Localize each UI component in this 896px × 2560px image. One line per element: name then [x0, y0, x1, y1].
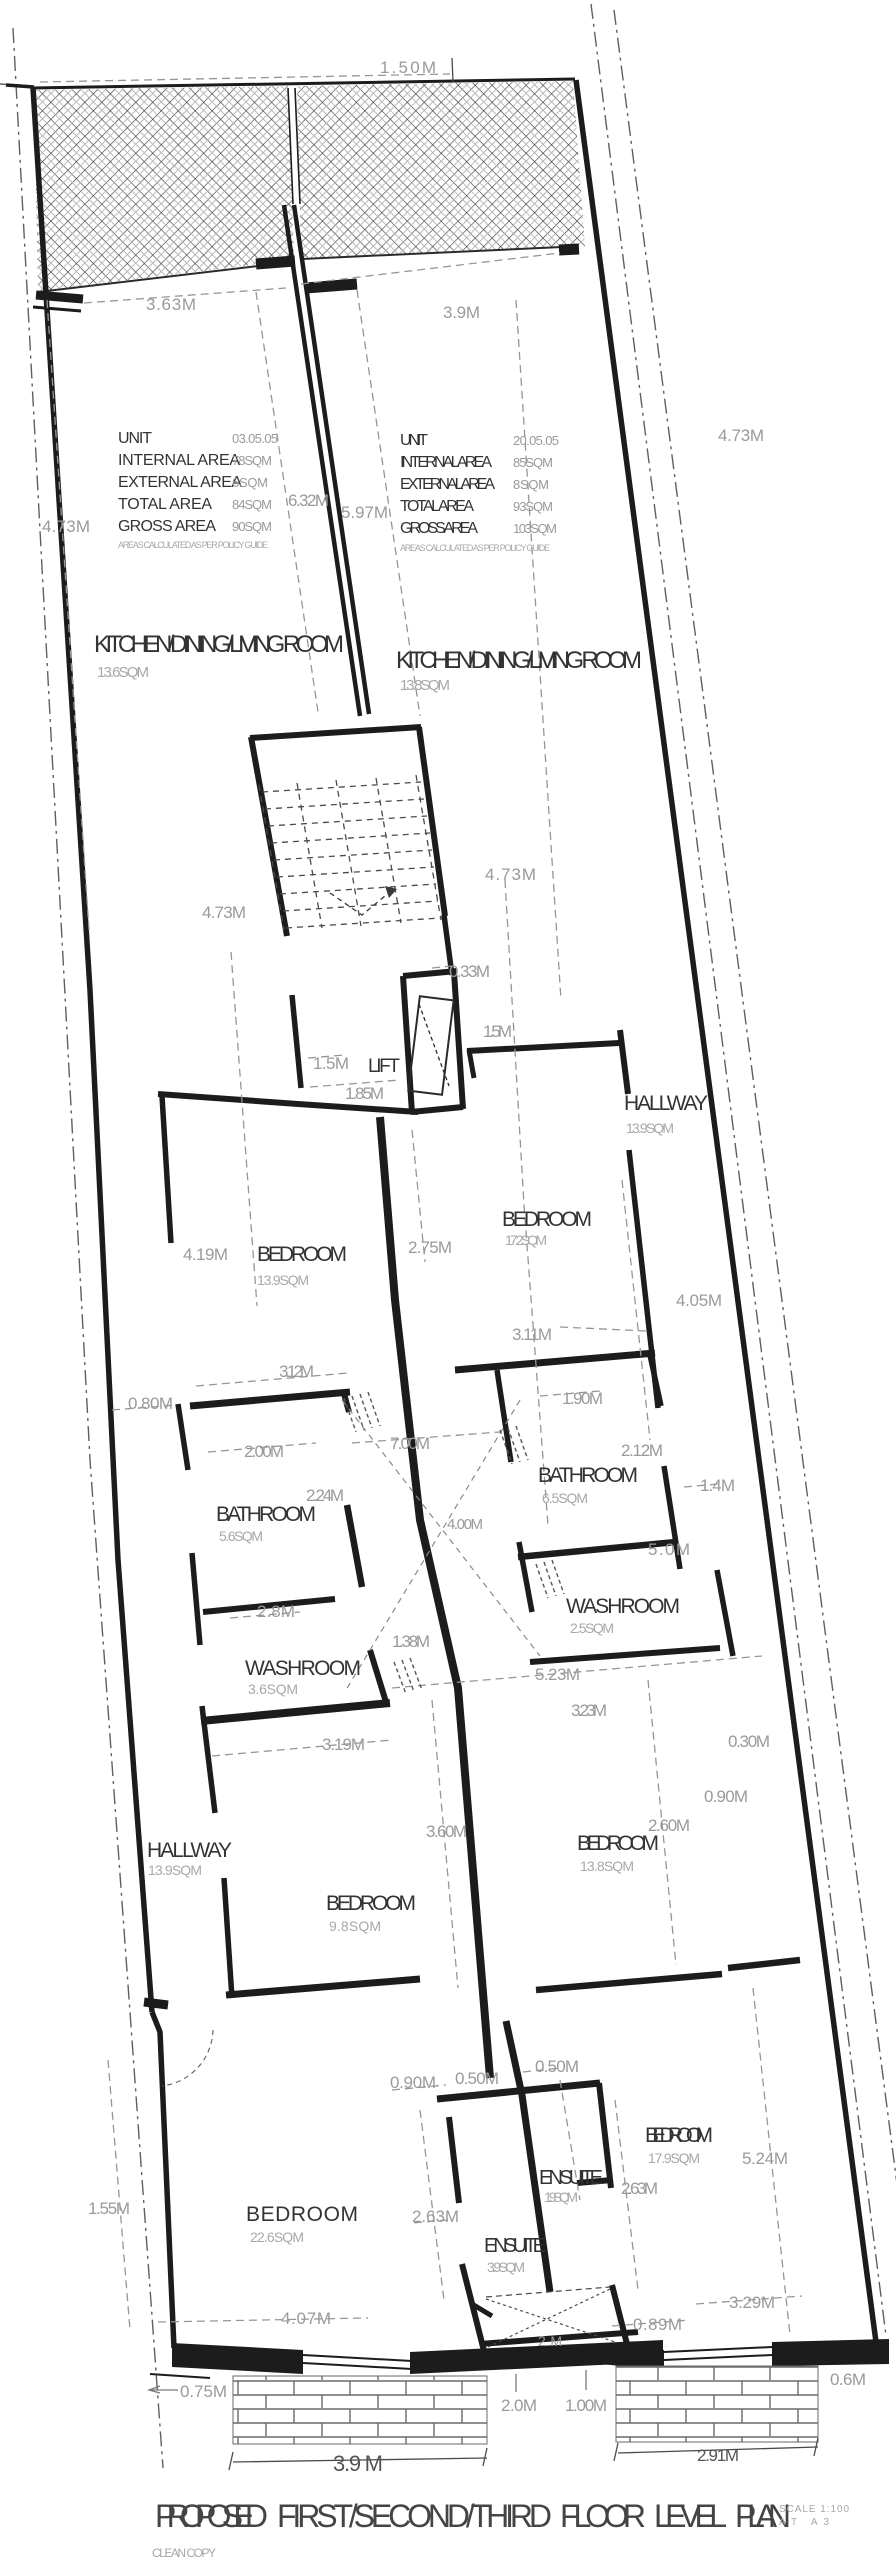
svg-text:5.23M: 5.23M: [535, 1665, 580, 1684]
svg-text:UNIT: UNIT: [400, 432, 428, 449]
svg-text:KITCHEN/DINING/LIVING ROOM: KITCHEN/DINING/LIVING ROOM: [94, 631, 344, 658]
svg-text:0.90M: 0.90M: [390, 2073, 436, 2092]
svg-text:2.5SQM: 2.5SQM: [570, 1620, 614, 1636]
svg-text:0.30M: 0.30M: [728, 1732, 770, 1751]
svg-text:SCALE 1:100: SCALE 1:100: [779, 2504, 849, 2515]
svg-text:BEDROOM: BEDROOM: [502, 1208, 592, 1231]
svg-text:0.80M: 0.80M: [128, 1394, 173, 1413]
svg-text:2.8M: 2.8M: [257, 1602, 295, 1621]
svg-text:AREAS CALCULATED AS PER POLICY: AREAS CALCULATED AS PER POLICY GUIDE: [400, 543, 550, 553]
svg-text:3.9SQM: 3.9SQM: [487, 2259, 525, 2275]
svg-text:3.11M: 3.11M: [512, 1325, 552, 1344]
svg-text:90SQM: 90SQM: [232, 519, 272, 534]
svg-text:5.6SQM: 5.6SQM: [219, 1528, 263, 1544]
svg-text:6.5SQM: 6.5SQM: [542, 1490, 588, 1506]
svg-text:BEDROOM: BEDROOM: [577, 1832, 659, 1855]
svg-text:BEDROOM: BEDROOM: [645, 2124, 713, 2147]
svg-text:LEVEL: LEVEL: [654, 2498, 727, 2534]
svg-text:2.91M: 2.91M: [697, 2446, 739, 2465]
svg-text:KITCHEN/DINING/LIVING ROOM: KITCHEN/DINING/LIVING ROOM: [396, 647, 642, 674]
svg-text:4.19M: 4.19M: [183, 1245, 228, 1264]
svg-text:6.32M: 6.32M: [288, 491, 329, 510]
svg-text:INTERNAL AREA: INTERNAL AREA: [118, 452, 240, 469]
svg-text:1.90M: 1.90M: [562, 1389, 603, 1408]
svg-text:3.60M: 3.60M: [426, 1822, 467, 1841]
svg-text:1.50M: 1.50M: [380, 58, 436, 77]
svg-text:9.8SQM: 9.8SQM: [329, 1918, 381, 1934]
svg-text:2.63M: 2.63M: [412, 2207, 459, 2226]
svg-text:22.6SQM: 22.6SQM: [250, 2229, 304, 2245]
svg-text:1.55M: 1.55M: [88, 2199, 130, 2218]
svg-text:78SQM: 78SQM: [232, 453, 272, 468]
svg-text:ENSUITE: ENSUITE: [484, 2235, 546, 2257]
svg-text:17.9SQM: 17.9SQM: [648, 2150, 700, 2166]
svg-text:BATHROOM: BATHROOM: [538, 1464, 638, 1487]
svg-text:3.12M: 3.12M: [279, 1362, 314, 1381]
svg-text:WASHROOM: WASHROOM: [245, 1657, 361, 1680]
svg-text:1.38M: 1.38M: [392, 1632, 430, 1651]
svg-text:5.97M: 5.97M: [341, 503, 388, 522]
svg-text:13.9SQM: 13.9SQM: [148, 1862, 202, 1878]
svg-text:EXTERNAL AREA: EXTERNAL AREA: [118, 474, 242, 491]
svg-text:4.73M: 4.73M: [718, 426, 764, 445]
svg-text:INTERNAL AREA: INTERNAL AREA: [400, 454, 492, 471]
svg-text:PROPOSED: PROPOSED: [155, 2498, 268, 2534]
svg-text:4.73M: 4.73M: [202, 903, 246, 922]
svg-text:TOTAL AREA: TOTAL AREA: [400, 498, 474, 515]
svg-text:3.9 M: 3.9 M: [333, 2451, 383, 2476]
svg-text:0.89M: 0.89M: [633, 2315, 682, 2334]
svg-text:4.73M: 4.73M: [485, 865, 536, 884]
svg-text:0.50M: 0.50M: [535, 2057, 579, 2076]
svg-text:03.05.05: 03.05.05: [232, 431, 278, 446]
svg-text:4.05M: 4.05M: [676, 1291, 722, 1310]
svg-text:85SQM: 85SQM: [513, 455, 553, 470]
svg-text:1.5M: 1.5M: [313, 1054, 349, 1073]
svg-text:84SQM: 84SQM: [232, 497, 272, 512]
svg-text:EXTERNAL AREA: EXTERNAL AREA: [400, 476, 495, 493]
svg-text:FIRST/SECOND/THIRD: FIRST/SECOND/THIRD: [277, 2498, 552, 2534]
svg-text:0.50M: 0.50M: [455, 2069, 499, 2088]
svg-text:0.90M: 0.90M: [704, 1787, 748, 1806]
svg-text:0.75M: 0.75M: [180, 2382, 227, 2401]
svg-text:8SQM: 8SQM: [513, 477, 549, 492]
svg-text:1.00M: 1.00M: [565, 2396, 607, 2415]
svg-text:FLOOR: FLOOR: [560, 2498, 646, 2534]
svg-text:5.24M: 5.24M: [742, 2149, 788, 2168]
svg-text:4.07M: 4.07M: [281, 2309, 331, 2328]
svg-text:0.33M: 0.33M: [449, 962, 490, 981]
svg-text:UNIT: UNIT: [118, 430, 152, 447]
svg-text:GROSS AREA: GROSS AREA: [400, 520, 478, 537]
svg-text:BATHROOM: BATHROOM: [216, 1503, 316, 1526]
svg-text:6SQM: 6SQM: [232, 475, 268, 490]
svg-text:2.75M: 2.75M: [408, 1238, 452, 1257]
svg-text:20.05.05: 20.05.05: [513, 433, 559, 448]
svg-text:7.00M: 7.00M: [390, 1434, 430, 1453]
svg-text:93SQM: 93SQM: [513, 499, 553, 514]
svg-text:5.0M: 5.0M: [648, 1540, 690, 1559]
svg-text:3.29M: 3.29M: [729, 2293, 775, 2312]
svg-text:2.63M: 2.63M: [621, 2179, 658, 2198]
svg-text:1.4M: 1.4M: [700, 1476, 735, 1495]
svg-text:GROSS AREA: GROSS AREA: [118, 518, 216, 535]
svg-text:3.63M: 3.63M: [146, 295, 196, 314]
svg-text:HALLWAY: HALLWAY: [147, 1839, 232, 1862]
svg-text:3.6SQM: 3.6SQM: [248, 1681, 298, 1697]
svg-text:WASHROOM: WASHROOM: [566, 1595, 680, 1618]
svg-text:103SQM: 103SQM: [513, 521, 557, 536]
svg-text:3.19M: 3.19M: [322, 1735, 365, 1754]
svg-text:BEDROOM: BEDROOM: [246, 2203, 358, 2226]
svg-text:LIFT: LIFT: [368, 1056, 400, 1077]
svg-text:ENSUITE: ENSUITE: [539, 2167, 603, 2189]
svg-text:4.73M: 4.73M: [42, 517, 90, 536]
svg-text:2.0M: 2.0M: [501, 2396, 537, 2415]
svg-text:TOTAL AREA: TOTAL AREA: [118, 496, 212, 513]
svg-text:1.85M: 1.85M: [345, 1084, 384, 1103]
svg-text:3.23M: 3.23M: [571, 1701, 607, 1720]
svg-text:CLEAN COPY: CLEAN COPY: [152, 2546, 216, 2560]
svg-text:BEDROOM: BEDROOM: [257, 1243, 347, 1266]
svg-text:3.9M: 3.9M: [443, 303, 480, 322]
svg-text:2.12M: 2.12M: [621, 1441, 663, 1460]
svg-text:13.8SQM: 13.8SQM: [580, 1858, 634, 1874]
svg-text:4.00M: 4.00M: [447, 1516, 483, 1533]
svg-text:2.60M: 2.60M: [648, 1816, 690, 1835]
svg-text:0.6M: 0.6M: [830, 2370, 866, 2389]
svg-text:13.9SQM: 13.9SQM: [626, 1120, 674, 1136]
svg-text:17.2SQM: 17.2SQM: [505, 1232, 547, 1248]
svg-text:13.6SQM: 13.6SQM: [97, 664, 149, 681]
svg-text:2.24M: 2.24M: [306, 1486, 344, 1505]
svg-text:2.00M: 2.00M: [244, 1442, 284, 1461]
svg-text:1.5M: 1.5M: [483, 1022, 512, 1041]
svg-text:2M: 2M: [538, 2333, 562, 2349]
svg-text:1.9SQM: 1.9SQM: [544, 2189, 578, 2205]
svg-text:HALLWAY: HALLWAY: [624, 1092, 708, 1115]
svg-text:13.9SQM: 13.9SQM: [257, 1272, 309, 1288]
svg-text:13.8SQM: 13.8SQM: [400, 677, 450, 694]
svg-text:AREAS CALCULATED AS PER POLICY: AREAS CALCULATED AS PER POLICY GUIDE: [118, 540, 268, 550]
svg-text:BEDROOM: BEDROOM: [326, 1892, 416, 1915]
